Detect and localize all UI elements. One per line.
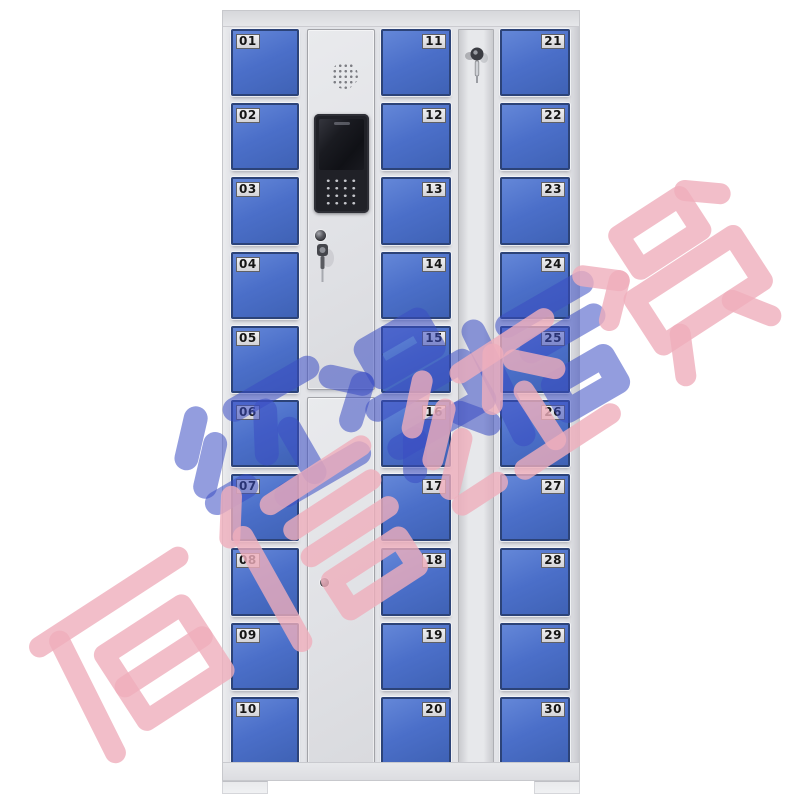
- door-number-label: 21: [541, 34, 565, 49]
- locker-door: 04: [231, 252, 299, 319]
- product-photo: 01020304050607080910: [0, 0, 800, 800]
- locker-door: 02: [231, 103, 299, 170]
- locker-door: 13: [381, 177, 451, 244]
- door-number-label: 28: [541, 553, 565, 568]
- locker-door: 14: [381, 252, 451, 319]
- locker-door: 20: [381, 697, 451, 764]
- locker-door: 01: [231, 29, 299, 96]
- cabinet-top-edge: [223, 11, 579, 27]
- door-number-label: 12: [422, 108, 446, 123]
- locker-door: 30: [500, 697, 570, 764]
- locker-door: 21: [500, 29, 570, 96]
- speaker-grille-icon: [331, 62, 358, 89]
- door-number-label: 06: [236, 405, 260, 420]
- locker-door: 18: [381, 548, 451, 615]
- door-number-label: 16: [422, 405, 446, 420]
- locker-door: 28: [500, 548, 570, 615]
- door-number-label: 19: [422, 628, 446, 643]
- door-number-label: 08: [236, 553, 260, 568]
- cabinet-foot-left: [222, 781, 268, 794]
- locker-door: 17: [381, 474, 451, 541]
- locker-door: 03: [231, 177, 299, 244]
- door-number-label: 17: [422, 479, 446, 494]
- locker-door: 22: [500, 103, 570, 170]
- door-number-label: 11: [422, 34, 446, 49]
- locker-door: 25: [500, 326, 570, 393]
- door-number-label: 22: [541, 108, 565, 123]
- door-number-label: 02: [236, 108, 260, 123]
- locker-door: 24: [500, 252, 570, 319]
- locker-door: 11: [381, 29, 451, 96]
- locker-door: 07: [231, 474, 299, 541]
- door-number-label: 04: [236, 257, 260, 272]
- lock-strip-column: [458, 29, 494, 764]
- door-number-label: 15: [422, 331, 446, 346]
- locker-door: 15: [381, 326, 451, 393]
- locker-door: 08: [231, 548, 299, 615]
- key-lock-icon: [320, 578, 329, 587]
- control-panel-column: [307, 29, 375, 764]
- locker-column-left: 01020304050607080910: [231, 29, 299, 764]
- door-number-label: 10: [236, 702, 260, 717]
- inserted-key-icon: [465, 44, 489, 96]
- door-number-label: 03: [236, 182, 260, 197]
- locker-door: 12: [381, 103, 451, 170]
- door-number-label: 05: [236, 331, 260, 346]
- cabinet-base: [223, 762, 579, 780]
- locker-door: 26: [500, 400, 570, 467]
- door-number-label: 26: [541, 405, 565, 420]
- locker-door: 10: [231, 697, 299, 764]
- locker-door: 27: [500, 474, 570, 541]
- door-number-label: 23: [541, 182, 565, 197]
- door-number-label: 09: [236, 628, 260, 643]
- keypad-icon: [323, 176, 356, 205]
- control-panel-lower-door: [307, 397, 375, 764]
- locker-door: 05: [231, 326, 299, 393]
- locker-column-right: 21222324252627282930: [500, 29, 570, 764]
- locker-door: 23: [500, 177, 570, 244]
- locker-door: 29: [500, 623, 570, 690]
- display-screen: [319, 119, 364, 170]
- terminal-module: [314, 114, 369, 213]
- door-number-label: 07: [236, 479, 260, 494]
- locker-door: 09: [231, 623, 299, 690]
- door-number-label: 18: [422, 553, 446, 568]
- locker-door: 16: [381, 400, 451, 467]
- hanging-keys-icon: [309, 242, 335, 286]
- door-number-label: 24: [541, 257, 565, 272]
- door-number-label: 01: [236, 34, 260, 49]
- cabinet-foot-right: [534, 781, 580, 794]
- door-number-label: 20: [422, 702, 446, 717]
- door-number-label: 29: [541, 628, 565, 643]
- door-number-label: 13: [422, 182, 446, 197]
- locker-door: 06: [231, 400, 299, 467]
- locker-column-middle: 11121314151617181920: [381, 29, 451, 764]
- locker-door: 19: [381, 623, 451, 690]
- door-number-label: 27: [541, 479, 565, 494]
- locker-cabinet: 01020304050607080910: [222, 10, 580, 781]
- door-number-label: 30: [541, 702, 565, 717]
- key-lock-icon: [315, 230, 326, 241]
- door-number-label: 25: [541, 331, 565, 346]
- control-panel-door: [307, 29, 375, 390]
- door-number-label: 14: [422, 257, 446, 272]
